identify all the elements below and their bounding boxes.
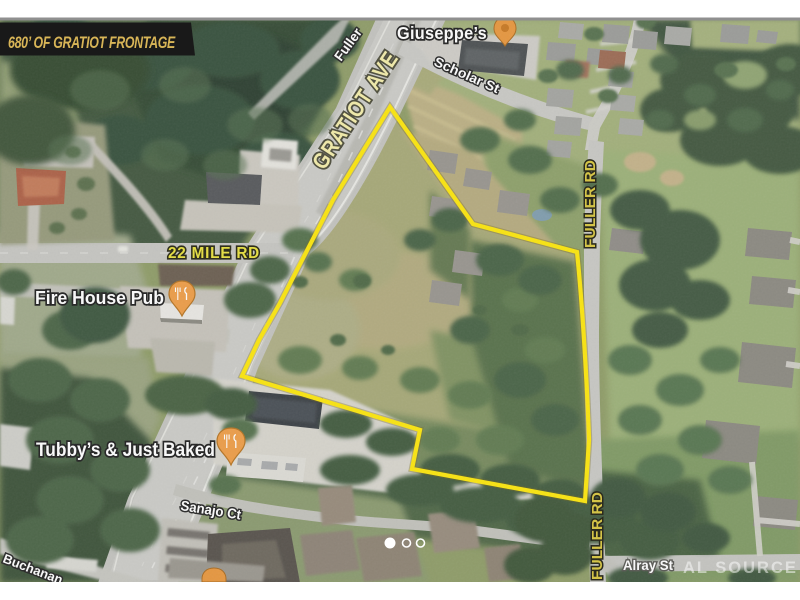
svg-text:AL SOURCE: AL SOURCE <box>683 559 798 577</box>
svg-text:680’ OF GRATIOT FRONTAGE: 680’ OF GRATIOT FRONTAGE <box>8 34 176 52</box>
